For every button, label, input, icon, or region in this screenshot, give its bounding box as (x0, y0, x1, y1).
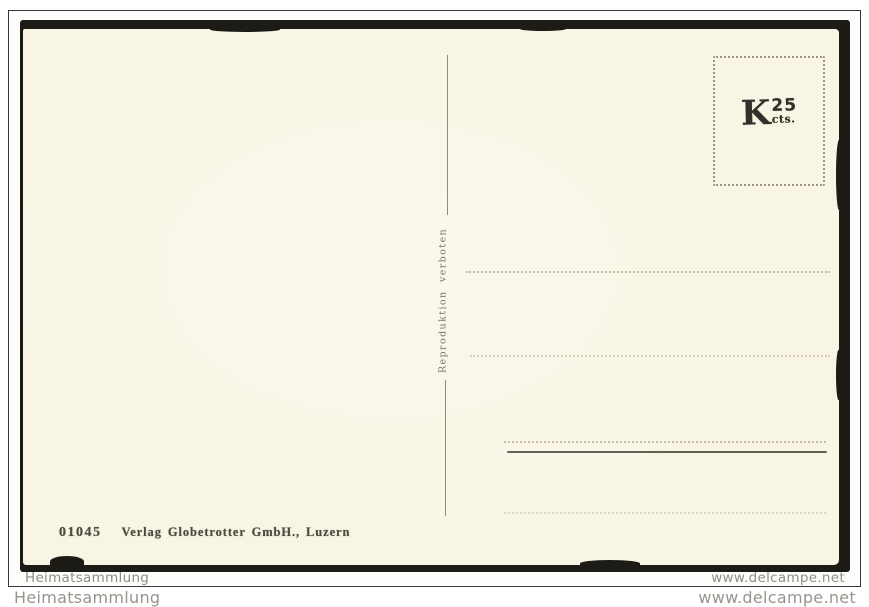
address-line (504, 441, 826, 443)
watermark-site-url: www.delcampe.net (711, 570, 845, 586)
address-line (466, 271, 830, 273)
watermark-collection-name: Heimatsammlung (14, 588, 160, 607)
torn-edge-fragment (210, 27, 280, 32)
stamp-value: K 25 cts. (741, 97, 798, 128)
torn-edge-fragment (50, 556, 84, 567)
reproduction-forbidden-note: Reproduktion verboten (438, 226, 451, 376)
scan-frame: K 25 cts. Reproduktion verboten (8, 10, 861, 587)
watermark-row-outer: Heimatsammlung www.delcampe.net (0, 587, 869, 607)
page-background: K 25 cts. Reproduktion verboten (0, 0, 869, 607)
address-line (504, 512, 826, 514)
torn-edge-fragment (836, 350, 841, 400)
torn-edge-fragment (836, 140, 842, 210)
watermark-collection-name: Heimatsammlung (25, 570, 149, 586)
publisher-number: 01045 (59, 525, 102, 541)
torn-edge-fragment (580, 560, 640, 567)
stamp-box: K 25 cts. (713, 56, 825, 186)
address-underline (507, 451, 827, 453)
stamp-value-unit: cts. (772, 113, 796, 125)
address-line (470, 355, 830, 357)
postcard-scan-backdrop: K 25 cts. Reproduktion verboten (20, 20, 850, 572)
divider-line-bottom (445, 380, 446, 516)
publisher-name: Verlag Globetrotter GmbH., Luzern (122, 525, 351, 540)
watermark-row-inner: Heimatsammlung www.delcampe.net (9, 570, 860, 586)
divider-line-top (447, 55, 448, 215)
watermark-site-url: www.delcampe.net (698, 588, 856, 607)
publisher-imprint: 01045 Verlag Globetrotter GmbH., Luzern (59, 525, 350, 541)
torn-edge-fragment (520, 27, 566, 31)
stamp-currency-letter: K (741, 98, 771, 129)
postcard-back: K 25 cts. Reproduktion verboten (23, 29, 839, 565)
